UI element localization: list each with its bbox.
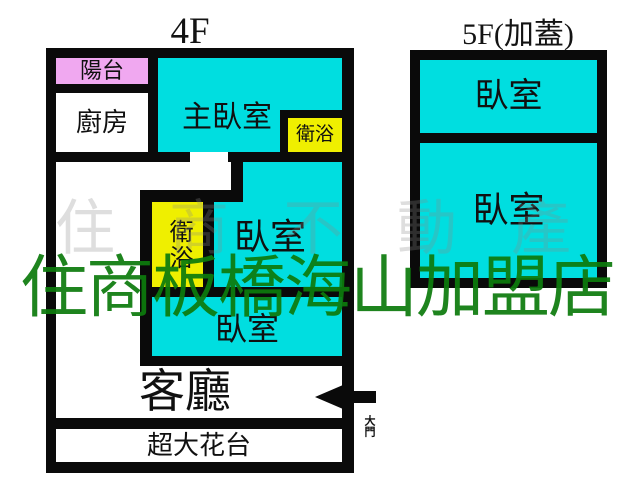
room-living-room: 客廳 [56, 366, 342, 418]
wall-right-of-kitchen [148, 58, 158, 152]
floor5-wall-between-bedrooms [420, 133, 597, 143]
floor5-outer-wall-top [410, 50, 607, 60]
room-flower-terrace: 超大花台 [56, 429, 342, 462]
room-kitchen: 廚房 [56, 93, 148, 152]
wall-bathroom-upper-top [280, 110, 342, 118]
floor4-outer-wall-bottom [46, 462, 354, 473]
agency-watermark: 住商板橋海山加盟店 [20, 250, 632, 326]
wall-below-living-room [56, 418, 342, 429]
main-door-arrow-shaft [343, 391, 376, 403]
room-floor5-bedroom-upper: 臥室 [420, 60, 597, 133]
main-door-arrow-icon [315, 385, 343, 409]
floor4-title: 4F [120, 10, 260, 53]
wall-corridor-right [231, 162, 243, 192]
wall-below-balcony [56, 84, 148, 93]
room-bathroom-upper: 衛浴 [288, 118, 342, 152]
wall-mid-horizontal-right [228, 152, 342, 162]
wall-bedroom-block-bottom [140, 356, 342, 366]
wall-mid-horizontal-left [56, 152, 190, 162]
floor5-title: 5F(加蓋) [408, 9, 628, 53]
main-door-label: 大門 [357, 412, 375, 440]
room-balcony: 陽台 [56, 58, 148, 84]
floor4-outer-wall-top [46, 48, 354, 58]
floorplan-canvas: 4F 5F(加蓋) 住商不動產 陽台 廚房 主臥室 衛浴 衛浴 臥室 臥室 客廳… [0, 0, 640, 480]
